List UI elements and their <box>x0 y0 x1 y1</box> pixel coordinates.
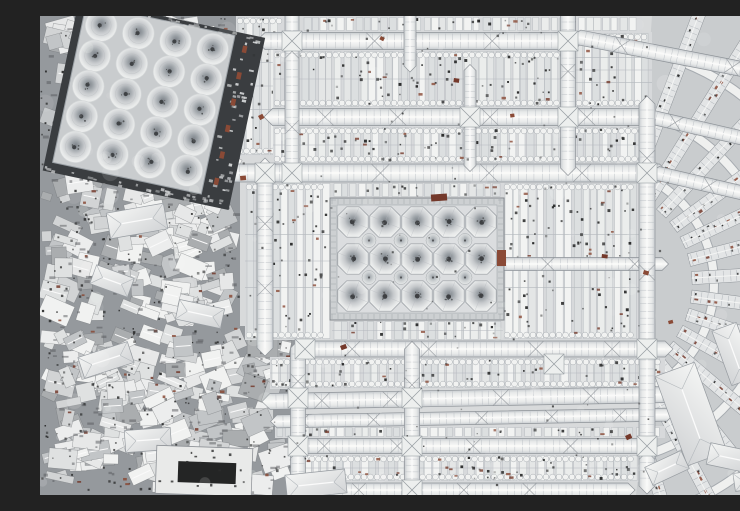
gable-pavilion <box>544 354 564 374</box>
vaulted-street-strip <box>257 158 273 356</box>
tile-red-accent <box>497 250 506 266</box>
gable-pavilion <box>637 436 657 456</box>
shop-roof-row <box>332 320 503 341</box>
shop-roof-row <box>302 16 642 32</box>
shop-roof-row <box>273 50 574 108</box>
bazaar-aerial-photo <box>40 16 740 495</box>
shop-roof-row <box>273 126 652 164</box>
gable-pavilion <box>558 31 578 51</box>
gable-pavilion <box>637 163 657 183</box>
gable-pavilion <box>295 339 315 359</box>
central-domed-bedesten <box>330 193 506 320</box>
shop-roof-row <box>270 357 665 389</box>
vaulted-street-strip <box>639 96 655 494</box>
vaulted-street-strip <box>288 439 648 454</box>
gable-pavilion <box>402 388 422 408</box>
vaulted-street-strip <box>405 342 420 496</box>
gable-pavilion <box>288 436 308 456</box>
gable-pavilion <box>558 107 578 127</box>
vaulted-street-strip <box>297 341 673 357</box>
gable-pavilion <box>288 388 308 408</box>
gable-pavilion <box>637 339 657 359</box>
tile-red-accent <box>431 193 447 201</box>
aerial-photo-canvas <box>40 16 740 495</box>
gable-pavilion <box>282 31 302 51</box>
gable-pavilion <box>402 436 422 456</box>
gable-pavilion <box>460 107 480 127</box>
gable-pavilion <box>255 163 275 183</box>
vaulted-street-strip <box>321 483 635 495</box>
vaulted-street-strip <box>291 341 306 484</box>
